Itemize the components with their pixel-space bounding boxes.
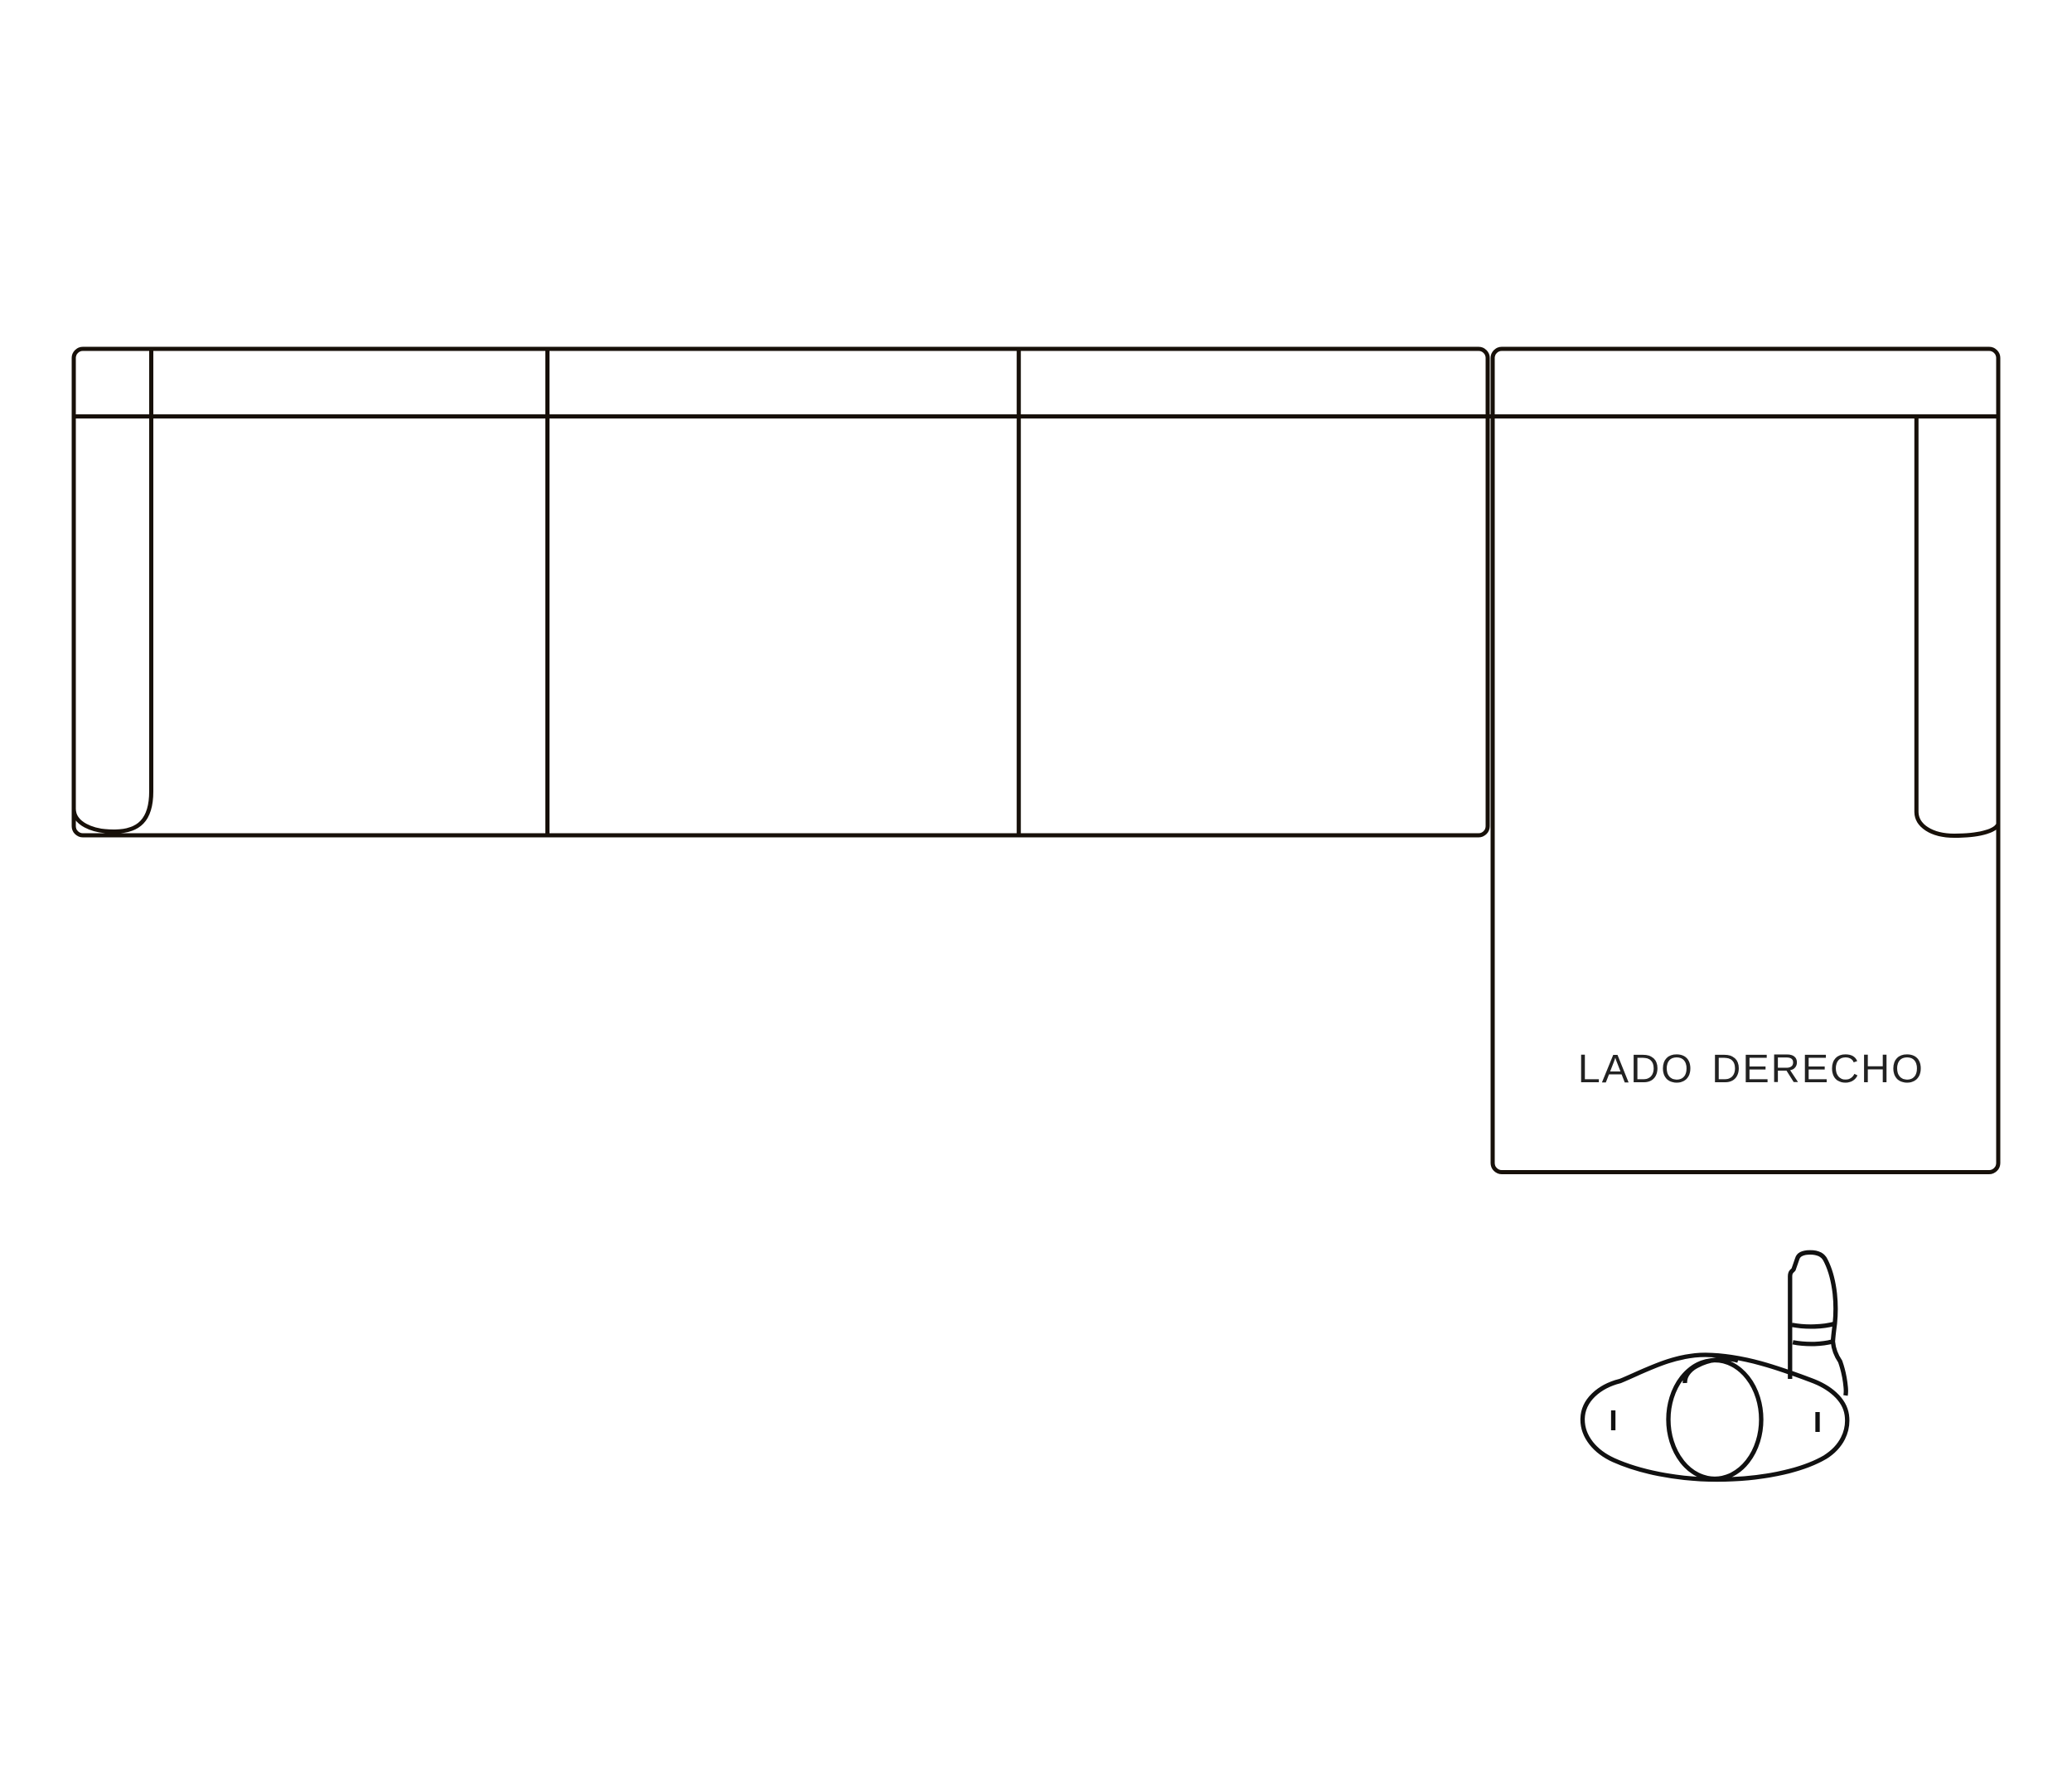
svg-text:LADO DERECHO: LADO DERECHO <box>1578 1047 1924 1091</box>
